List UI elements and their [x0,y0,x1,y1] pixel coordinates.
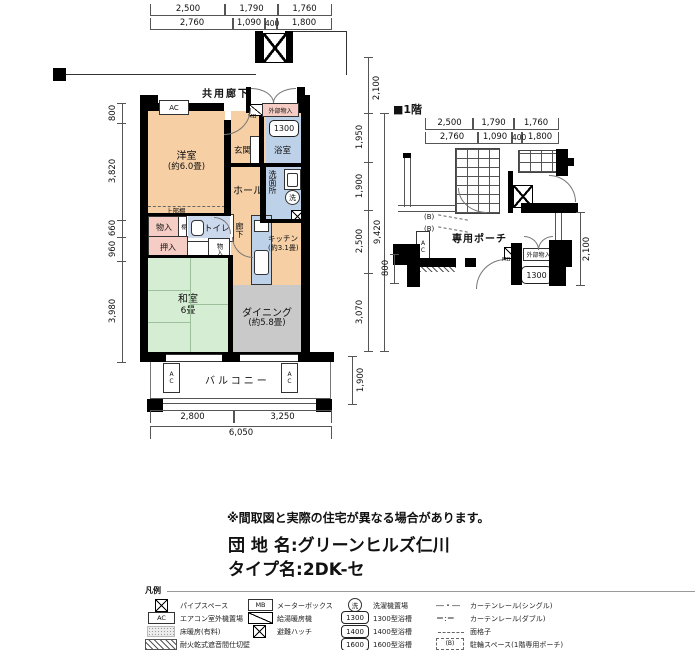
tick [364,351,373,352]
legend-rule [167,591,695,592]
f1-dimline-left [394,254,395,283]
tick [380,113,389,114]
f1-dim-top2-2760: 2,760 [425,132,479,144]
legend-hatch-icon [253,625,266,638]
legend-mb-icon: MB [248,599,273,611]
f1-ac-label: AC [420,240,427,254]
dim-top1-1760: 1,760 [277,4,332,16]
estate-name-value: グリーンヒルズ仁川 [298,536,450,556]
ac-box-balcony-left: AC [163,363,180,393]
wall-japanese-dining [228,255,233,352]
f1-bathtub-1300: 1300 [521,266,552,284]
legend-ac-label: エアコン室外機置場 [180,614,243,624]
estate-name-label: 団 地 名: [228,536,298,556]
dim-left-3980: 3,980 [108,299,118,323]
tick [364,210,373,211]
legend-wash-label: 洗濯機置場 [373,601,408,611]
legend-curtain-single-label: カーテンレール(シングル) [470,601,552,611]
dimline-right-main [368,113,369,351]
f1-black-tick [568,158,574,166]
f1-meter-box-label: MB [502,257,511,263]
f1-dim-800: 800 [381,260,391,276]
tick [117,362,126,363]
dim-top2-2760: 2,760 [150,18,234,30]
wall-entry-bath [259,116,264,165]
dim-bottom-2800: 2,800 [150,410,235,423]
ac-box-balcony-right: AC [281,363,298,393]
f1-door-stub [465,258,476,267]
legend-curtain-single-icon: ―・― [436,600,460,611]
floorplan-sheet: 2,500 1,790 1,760 2,760 1,090 400 1,800 … [0,0,700,650]
dining-size: (約5.8畳) [248,319,285,329]
dim-right-1950: 1,950 [355,125,365,149]
washbasin [284,169,301,190]
kitchen-sink [254,250,269,275]
room-western: 洋室 (約6.0畳) [148,111,225,213]
tick [117,261,126,262]
wall-left [140,103,148,362]
bike-space-b1: (B) [424,213,434,221]
room-japanese: 和室 6畳 [148,258,228,352]
f1-bottom-hatch [420,267,456,272]
legend-ac-icon: AC [148,612,175,624]
f1-porch-door-arc [476,259,506,289]
pipe-space-icon [263,33,287,63]
dim-right-3070: 3,070 [355,300,365,324]
porch-label: 専用ポーチ [452,230,507,245]
dim-top2-1800: 1,800 [276,18,332,30]
corridor-label: 共用廊下 [202,85,250,100]
f1-dim-top2-1800: 1,800 [521,132,559,144]
legend-fire-wall-icon [145,639,177,650]
tatami-line-h1 [148,290,190,291]
legend-tub-1600-icon: 1600 [341,638,369,650]
storage-b-label: 物入 [214,243,224,256]
f1-stair-door-arc [549,175,576,202]
tick [348,404,357,405]
dim-left-660: 660 [108,220,118,236]
f1-wall-left-cap [403,153,411,158]
legend-tub-1400-icon: 1400 [341,625,369,638]
tick [364,57,373,58]
estate-name-line: 団 地 名:グリーンヒルズ仁川 [228,531,450,556]
tick [364,113,373,114]
notice-text: ※間取図と実際の住宅が異なる場合があります。 [227,509,489,526]
legend-water-heater-icon [248,612,273,624]
dim-left-800: 800 [108,105,118,121]
legend-tub-1300-icon: 1300 [341,611,369,624]
dim-bottom-3250: 3,250 [233,410,332,423]
japanese-size: 6畳 [181,306,196,316]
tatami-line-h3 [190,304,228,305]
room-washroom-label: 洗面所 [267,170,278,194]
bathtub-1300: 1300 [269,120,299,137]
tatami-line-h2 [148,322,190,323]
f1-dim-top1-1760: 1,760 [513,118,559,130]
window-dining [240,354,298,362]
building-outline-h [293,31,346,32]
dimline-right-1900b [352,356,353,404]
wall-right [301,95,310,352]
tick [390,254,399,255]
wall-wash-kitchen [260,219,302,223]
stairs-grid-upper [518,150,558,173]
tick [576,212,585,213]
f1-dim-top1-2500: 2,500 [425,118,474,130]
dim-left-960: 960 [108,241,118,257]
balcony-rail-left [150,362,151,402]
legend-floor-heating-icon [147,626,175,637]
type-name-value: 2DK-セ [303,560,365,580]
room-dining: ダイニング (約5.8畳) [233,285,301,352]
f1-black-right-2 [549,266,566,286]
f1-black-right-1 [549,240,572,267]
legend-curtain-double-label: カーテンレール(ダブル) [470,614,545,624]
f1-dimline-right [580,212,581,285]
tick [364,162,373,163]
legend-pipe-space-label: パイプスペース [180,601,228,611]
f1-dim-top2-1090: 1,090 [477,132,513,144]
dimline-right-2100 [368,57,369,113]
balcony-label: バルコニー [205,372,270,387]
f1-ext-door-left [524,236,539,250]
ac-box-top: AC [159,100,189,115]
building-outline-v [346,31,347,75]
corridor-line [55,74,256,75]
dim-top2-1090: 1,090 [232,18,266,30]
tick [348,356,357,357]
tick [117,220,126,221]
legend-tub-1600-label: 1600型浴槽 [373,640,412,650]
type-name-label: タイプ名: [228,560,303,580]
dim-right-2500: 2,500 [355,229,365,253]
toilet-bowl-icon [191,220,204,236]
kitchen-name: キッチン [268,234,298,243]
dimline-right-total [384,113,385,351]
legend-mb-label: メーターボックス [277,601,333,611]
legend-bike-icon: (B) [436,638,464,650]
dim-top1-2500: 2,500 [150,4,226,16]
f1-dim-2100: 2,100 [582,237,592,261]
room-kitchen-label: キッチン (約3.1畳) [268,234,299,252]
dim-right-9420: 9,420 [373,220,383,244]
room-western-size: (約6.0畳) [168,163,205,173]
dimline-left [122,103,123,362]
legend-pipe-space-icon [155,599,168,612]
window-japanese [166,354,222,362]
f1-wall-bar [521,203,578,213]
wall-western-storage [148,213,225,216]
legend-grate-icon [438,632,464,633]
ac-balcony-right-label: AC [286,371,293,385]
legend-wash-icon: 洗 [348,598,362,612]
legend-title: 凡例 [145,585,161,596]
dim-right-1900-bottom: 1,900 [356,368,366,392]
ext-storage-door-right [273,88,296,103]
legend-bike-label: 駐輪スペース(1階専用ポーチ) [470,640,563,650]
room-hall-label: ホール [233,182,263,197]
room-bath-label: 浴室 [274,144,291,156]
tatami-line-v [190,258,191,352]
f1-wall-left-thin [404,158,411,207]
f1-corridor-line [398,205,456,212]
balcony-rail-right [330,362,331,402]
legend-hatch-label: 避難ハッチ [277,627,312,637]
dim-right-1900: 1,900 [355,174,365,198]
legend-curtain-double-icon: ＝:＝ [436,613,455,624]
type-name-line: タイプ名:2DK-セ [228,555,365,580]
tick [117,237,126,238]
legend-floor-heating-label: 床暖房(有料) [180,627,220,637]
kitchen-size: (約3.1畳) [268,244,299,252]
dim-bottom-6050: 6,050 [150,426,332,439]
balcony-rail-bottom [150,398,330,404]
room-entrance-label: 玄関 [234,144,251,156]
bike-dash-1 [438,214,468,220]
tick [117,103,126,104]
corridor-post [53,68,66,81]
tick [117,123,126,124]
f1-black-bath-left [511,243,522,285]
legend-water-heater-label: 給湯暖房機 [277,614,312,624]
ac-balcony-left-label: AC [168,371,175,385]
storage-a: 物入 [148,216,180,238]
washing-machine-circle: 洗 [285,190,300,205]
f1-dim-top1-1790: 1,790 [472,118,515,130]
tick [364,273,373,274]
floor1-title: ■1階 [393,101,422,117]
tick [390,283,399,284]
dim-top1-1790: 1,790 [224,4,279,16]
legend-grate-label: 面格子 [470,627,491,637]
ext-storage-label-box: 外部物入 [262,103,299,117]
corridor-inner-label: 廊下 [234,222,245,238]
f1-bottom-wall [420,258,456,267]
f1-black-left-stub [407,265,420,287]
legend-tub-1400-label: 1400型浴槽 [373,627,412,637]
wall-hall-wash [260,167,266,221]
ext-storage-door-left [251,88,274,103]
tick [576,285,585,286]
wall-closet-japanese [148,255,228,258]
pipe-shaft-wall-left [255,31,263,63]
dim-left-3820: 3,820 [108,159,118,183]
dim-right-2100: 2,100 [372,76,382,100]
legend-fire-wall-label: 耐火乾式遮音間仕切壁 [180,640,250,650]
legend-tub-1300-label: 1300型浴槽 [373,614,412,624]
f1-black-box-top [556,149,568,176]
tick [380,351,389,352]
